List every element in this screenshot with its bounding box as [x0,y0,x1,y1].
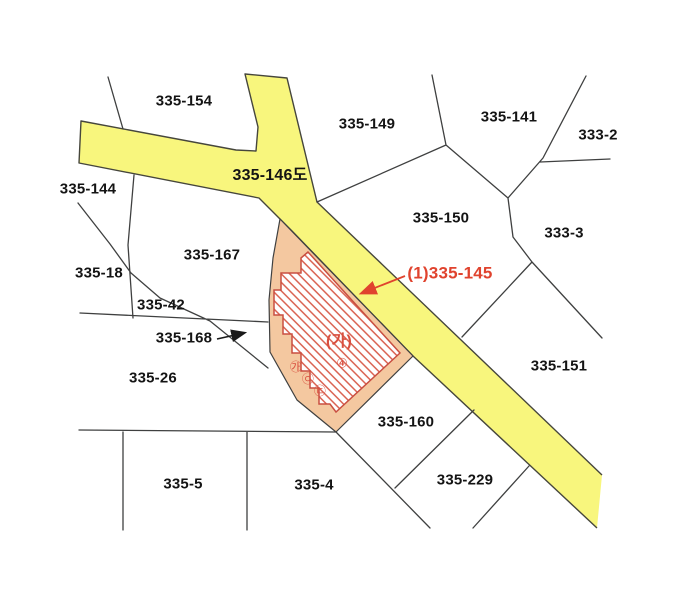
parcel-label-333-3: 333-3 [544,226,583,241]
parcel-label-335-150: 335-150 [413,211,469,226]
road-label-335-146: 335-146도 [232,168,307,184]
parcel-label-335-160: 335-160 [378,415,434,430]
parcel-label-335-42: 335-42 [137,298,185,313]
subject-callout-label: (1)335-145 [407,265,492,282]
parcel-label-335-149: 335-149 [339,117,395,132]
subject-interior-number: ④ [336,357,348,370]
parcel-label-335-5: 335-5 [163,477,202,492]
parcel-label-335-167: 335-167 [184,248,240,263]
parcel-label-335-144: 335-144 [60,182,116,197]
parcel-label-335-168: 335-168 [156,331,212,346]
subject-interior-label: (가) [326,334,352,350]
parcel-label-335-151: 335-151 [531,359,587,374]
map-drawing [0,0,679,600]
parcel-label-333-2: 333-2 [578,128,617,143]
edge-marker-3: ㉢ [314,385,326,397]
parcel-label-335-4: 335-4 [294,478,333,493]
parcel-label-335-18: 335-18 [75,266,123,281]
parcel-label-335-154: 335-154 [156,94,212,109]
edge-marker-1: ㉮ [290,361,302,373]
cadastral-map: 335-154 335-149 335-141 333-2 335-144 33… [0,0,679,600]
parcel-label-335-26: 335-26 [129,371,177,386]
edge-marker-2: ㉧ [302,373,314,385]
parcel-label-335-229: 335-229 [437,473,493,488]
parcel-label-335-141: 335-141 [481,110,537,125]
